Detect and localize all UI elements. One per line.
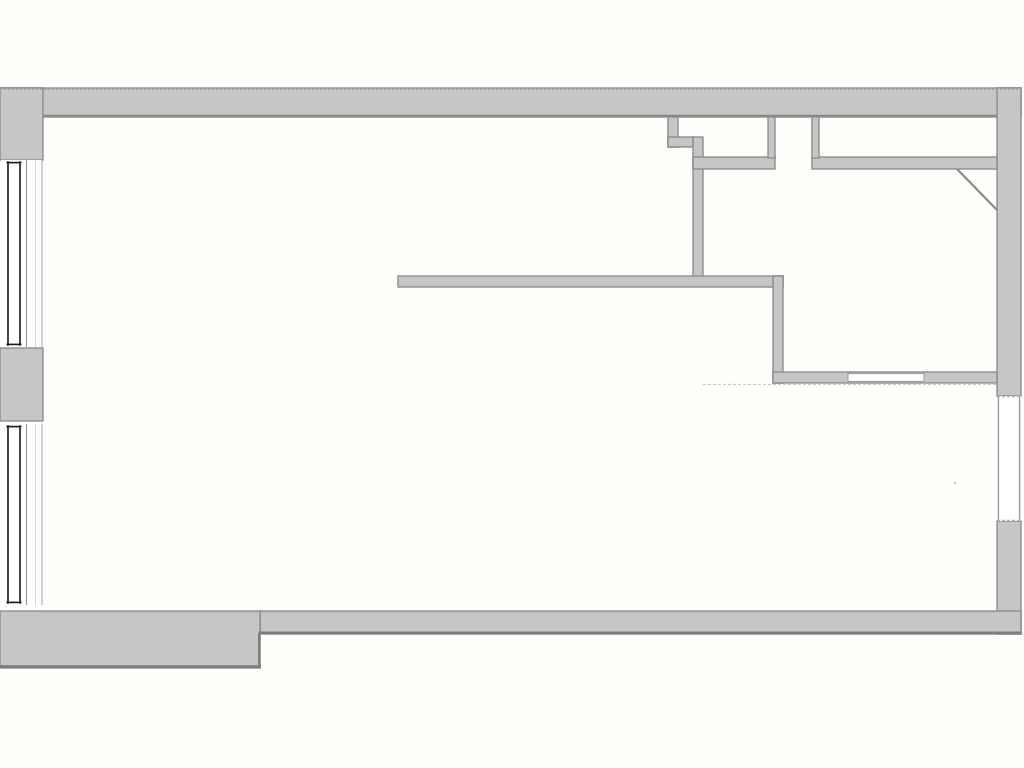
bottom-wall-right — [260, 611, 1021, 634]
entry-step-nub — [668, 137, 693, 147]
left-wall-upper — [0, 88, 43, 160]
stray-mark — [954, 482, 956, 484]
closet-band-right — [812, 157, 997, 169]
long-wall — [398, 276, 783, 287]
left-wall-pier — [0, 348, 43, 421]
floor-plan-canvas — [0, 0, 1024, 768]
closet-divider-left — [768, 117, 775, 158]
floor-plan-svg — [0, 0, 1024, 768]
hall-wall-vertical — [773, 276, 783, 383]
room-wall-opening — [848, 374, 924, 382]
bottom-wall-left — [0, 611, 260, 668]
right-wall-upper — [997, 88, 1021, 396]
top-wall — [0, 88, 1021, 117]
closet-band-left — [693, 157, 775, 169]
closet-divider-right — [812, 117, 819, 158]
window-right-wall — [997, 396, 1021, 521]
